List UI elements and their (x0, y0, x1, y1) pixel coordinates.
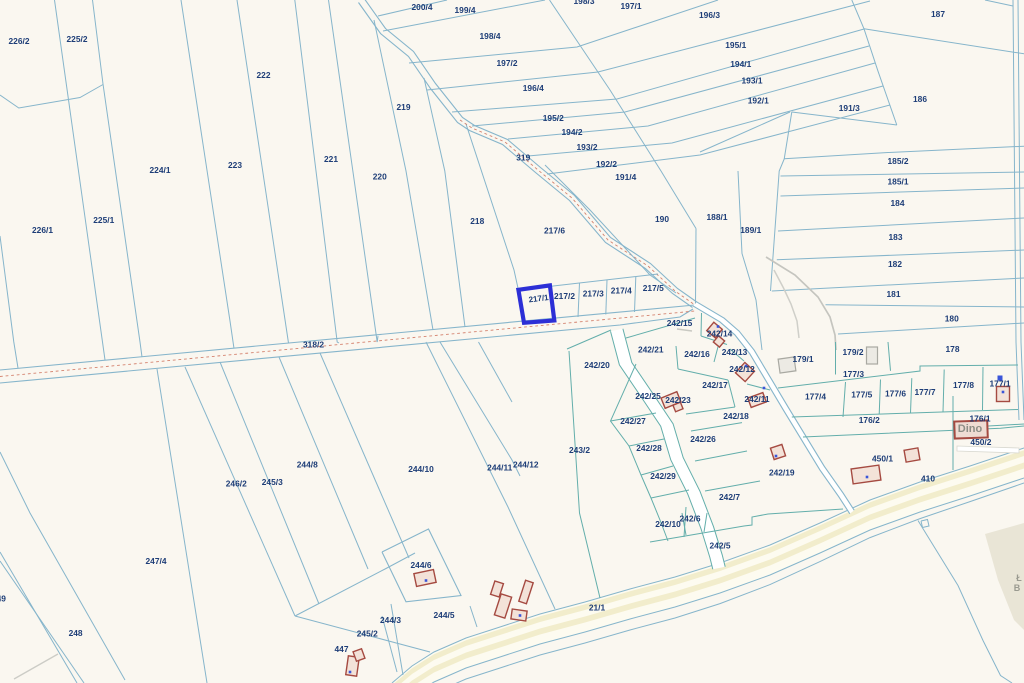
svg-text:242/13: 242/13 (722, 347, 748, 357)
svg-text:177/3: 177/3 (843, 369, 864, 379)
svg-text:B: B (1014, 583, 1021, 593)
svg-text:242/7: 242/7 (719, 492, 740, 502)
svg-text:196/3: 196/3 (699, 10, 720, 20)
svg-text:49: 49 (0, 594, 6, 604)
svg-text:195/2: 195/2 (543, 113, 564, 123)
svg-text:447: 447 (335, 644, 349, 654)
svg-text:221: 221 (324, 154, 338, 164)
svg-text:245/3: 245/3 (262, 477, 283, 487)
svg-text:191/3: 191/3 (839, 103, 860, 113)
svg-text:217/2: 217/2 (554, 291, 575, 301)
svg-text:244/11: 244/11 (487, 463, 512, 473)
svg-text:242/26: 242/26 (690, 434, 716, 444)
svg-text:178: 178 (946, 344, 960, 354)
svg-text:450/2: 450/2 (970, 437, 991, 447)
svg-text:177/4: 177/4 (805, 392, 826, 402)
svg-text:244/10: 244/10 (408, 464, 434, 474)
svg-text:226/1: 226/1 (32, 225, 53, 235)
svg-text:188/1: 188/1 (707, 212, 728, 222)
svg-text:192/1: 192/1 (748, 96, 769, 106)
svg-text:242/18: 242/18 (723, 411, 749, 421)
svg-text:186: 186 (913, 94, 927, 104)
svg-text:246/2: 246/2 (226, 478, 247, 488)
svg-text:450/1: 450/1 (872, 453, 893, 463)
svg-text:242/28: 242/28 (636, 443, 662, 453)
svg-text:242/5: 242/5 (710, 541, 731, 551)
svg-text:244/12: 244/12 (513, 460, 539, 470)
svg-text:242/17: 242/17 (702, 380, 728, 390)
svg-text:193/2: 193/2 (577, 142, 598, 152)
svg-text:185/1: 185/1 (888, 177, 909, 187)
svg-text:176/2: 176/2 (859, 415, 880, 425)
svg-text:242/20: 242/20 (584, 360, 610, 370)
svg-text:242/19: 242/19 (769, 468, 795, 478)
svg-text:242/11: 242/11 (744, 394, 769, 404)
svg-text:225/1: 225/1 (93, 215, 114, 225)
svg-text:242/14: 242/14 (707, 329, 733, 339)
svg-text:190: 190 (655, 214, 669, 224)
svg-text:176/1: 176/1 (970, 413, 991, 423)
svg-text:177/1: 177/1 (990, 378, 1011, 388)
svg-text:177/7: 177/7 (915, 387, 936, 397)
svg-text:200/4: 200/4 (412, 2, 433, 12)
svg-text:Dino: Dino (958, 423, 983, 435)
svg-text:242/10: 242/10 (655, 519, 681, 529)
svg-text:242/23: 242/23 (665, 395, 691, 405)
svg-text:410: 410 (921, 473, 935, 483)
svg-text:197/1: 197/1 (621, 1, 642, 11)
svg-text:184: 184 (891, 198, 905, 208)
svg-text:177/6: 177/6 (885, 388, 906, 398)
svg-text:198/4: 198/4 (480, 31, 501, 41)
svg-text:194/1: 194/1 (730, 59, 751, 69)
svg-text:198/3: 198/3 (574, 0, 595, 6)
svg-text:182: 182 (888, 259, 902, 269)
svg-text:319: 319 (516, 153, 530, 163)
svg-text:220: 220 (373, 172, 387, 182)
svg-text:243/2: 243/2 (569, 445, 590, 455)
svg-text:242/25: 242/25 (635, 391, 661, 401)
svg-text:187: 187 (931, 9, 945, 19)
svg-text:185/2: 185/2 (888, 156, 909, 166)
svg-text:242/27: 242/27 (620, 416, 646, 426)
svg-text:244/8: 244/8 (297, 460, 318, 470)
svg-text:242/6: 242/6 (680, 514, 701, 524)
svg-text:225/2: 225/2 (67, 34, 88, 44)
svg-text:194/2: 194/2 (562, 127, 583, 137)
svg-text:244/6: 244/6 (411, 560, 432, 570)
svg-text:226/2: 226/2 (9, 36, 30, 46)
svg-text:242/12: 242/12 (729, 364, 755, 374)
svg-text:217/5: 217/5 (643, 283, 664, 293)
svg-text:199/4: 199/4 (455, 5, 476, 15)
svg-text:196/4: 196/4 (523, 83, 544, 93)
svg-text:179/2: 179/2 (843, 347, 864, 357)
svg-text:189/1: 189/1 (740, 225, 761, 235)
svg-text:242/29: 242/29 (650, 471, 676, 481)
svg-text:197/2: 197/2 (497, 58, 518, 68)
svg-text:217/3: 217/3 (583, 289, 604, 299)
svg-text:195/1: 195/1 (725, 40, 746, 50)
svg-text:218: 218 (470, 216, 484, 226)
svg-text:222: 222 (257, 70, 271, 80)
svg-text:318/2: 318/2 (303, 340, 324, 350)
svg-text:242/15: 242/15 (667, 318, 693, 328)
svg-text:191/4: 191/4 (615, 172, 636, 182)
svg-text:244/3: 244/3 (380, 615, 401, 625)
svg-text:242/21: 242/21 (638, 345, 664, 355)
svg-text:217/4: 217/4 (611, 286, 632, 296)
svg-text:Ł: Ł (1016, 573, 1022, 583)
svg-text:179/1: 179/1 (793, 354, 814, 364)
svg-text:247/4: 247/4 (146, 556, 167, 566)
svg-text:177/8: 177/8 (953, 380, 974, 390)
svg-text:224/1: 224/1 (150, 165, 171, 175)
svg-text:180: 180 (945, 314, 959, 324)
svg-text:248: 248 (69, 628, 83, 638)
svg-text:223: 223 (228, 160, 242, 170)
svg-text:193/1: 193/1 (742, 76, 763, 86)
svg-text:245/2: 245/2 (357, 629, 378, 639)
svg-text:183: 183 (889, 232, 903, 242)
svg-text:21/1: 21/1 (589, 603, 606, 613)
svg-text:177/5: 177/5 (851, 390, 872, 400)
svg-text:217/6: 217/6 (544, 226, 565, 236)
svg-text:244/5: 244/5 (434, 610, 455, 620)
svg-text:242/16: 242/16 (684, 349, 710, 359)
svg-text:181: 181 (887, 289, 901, 299)
svg-text:192/2: 192/2 (596, 159, 617, 169)
svg-text:219: 219 (397, 102, 411, 112)
